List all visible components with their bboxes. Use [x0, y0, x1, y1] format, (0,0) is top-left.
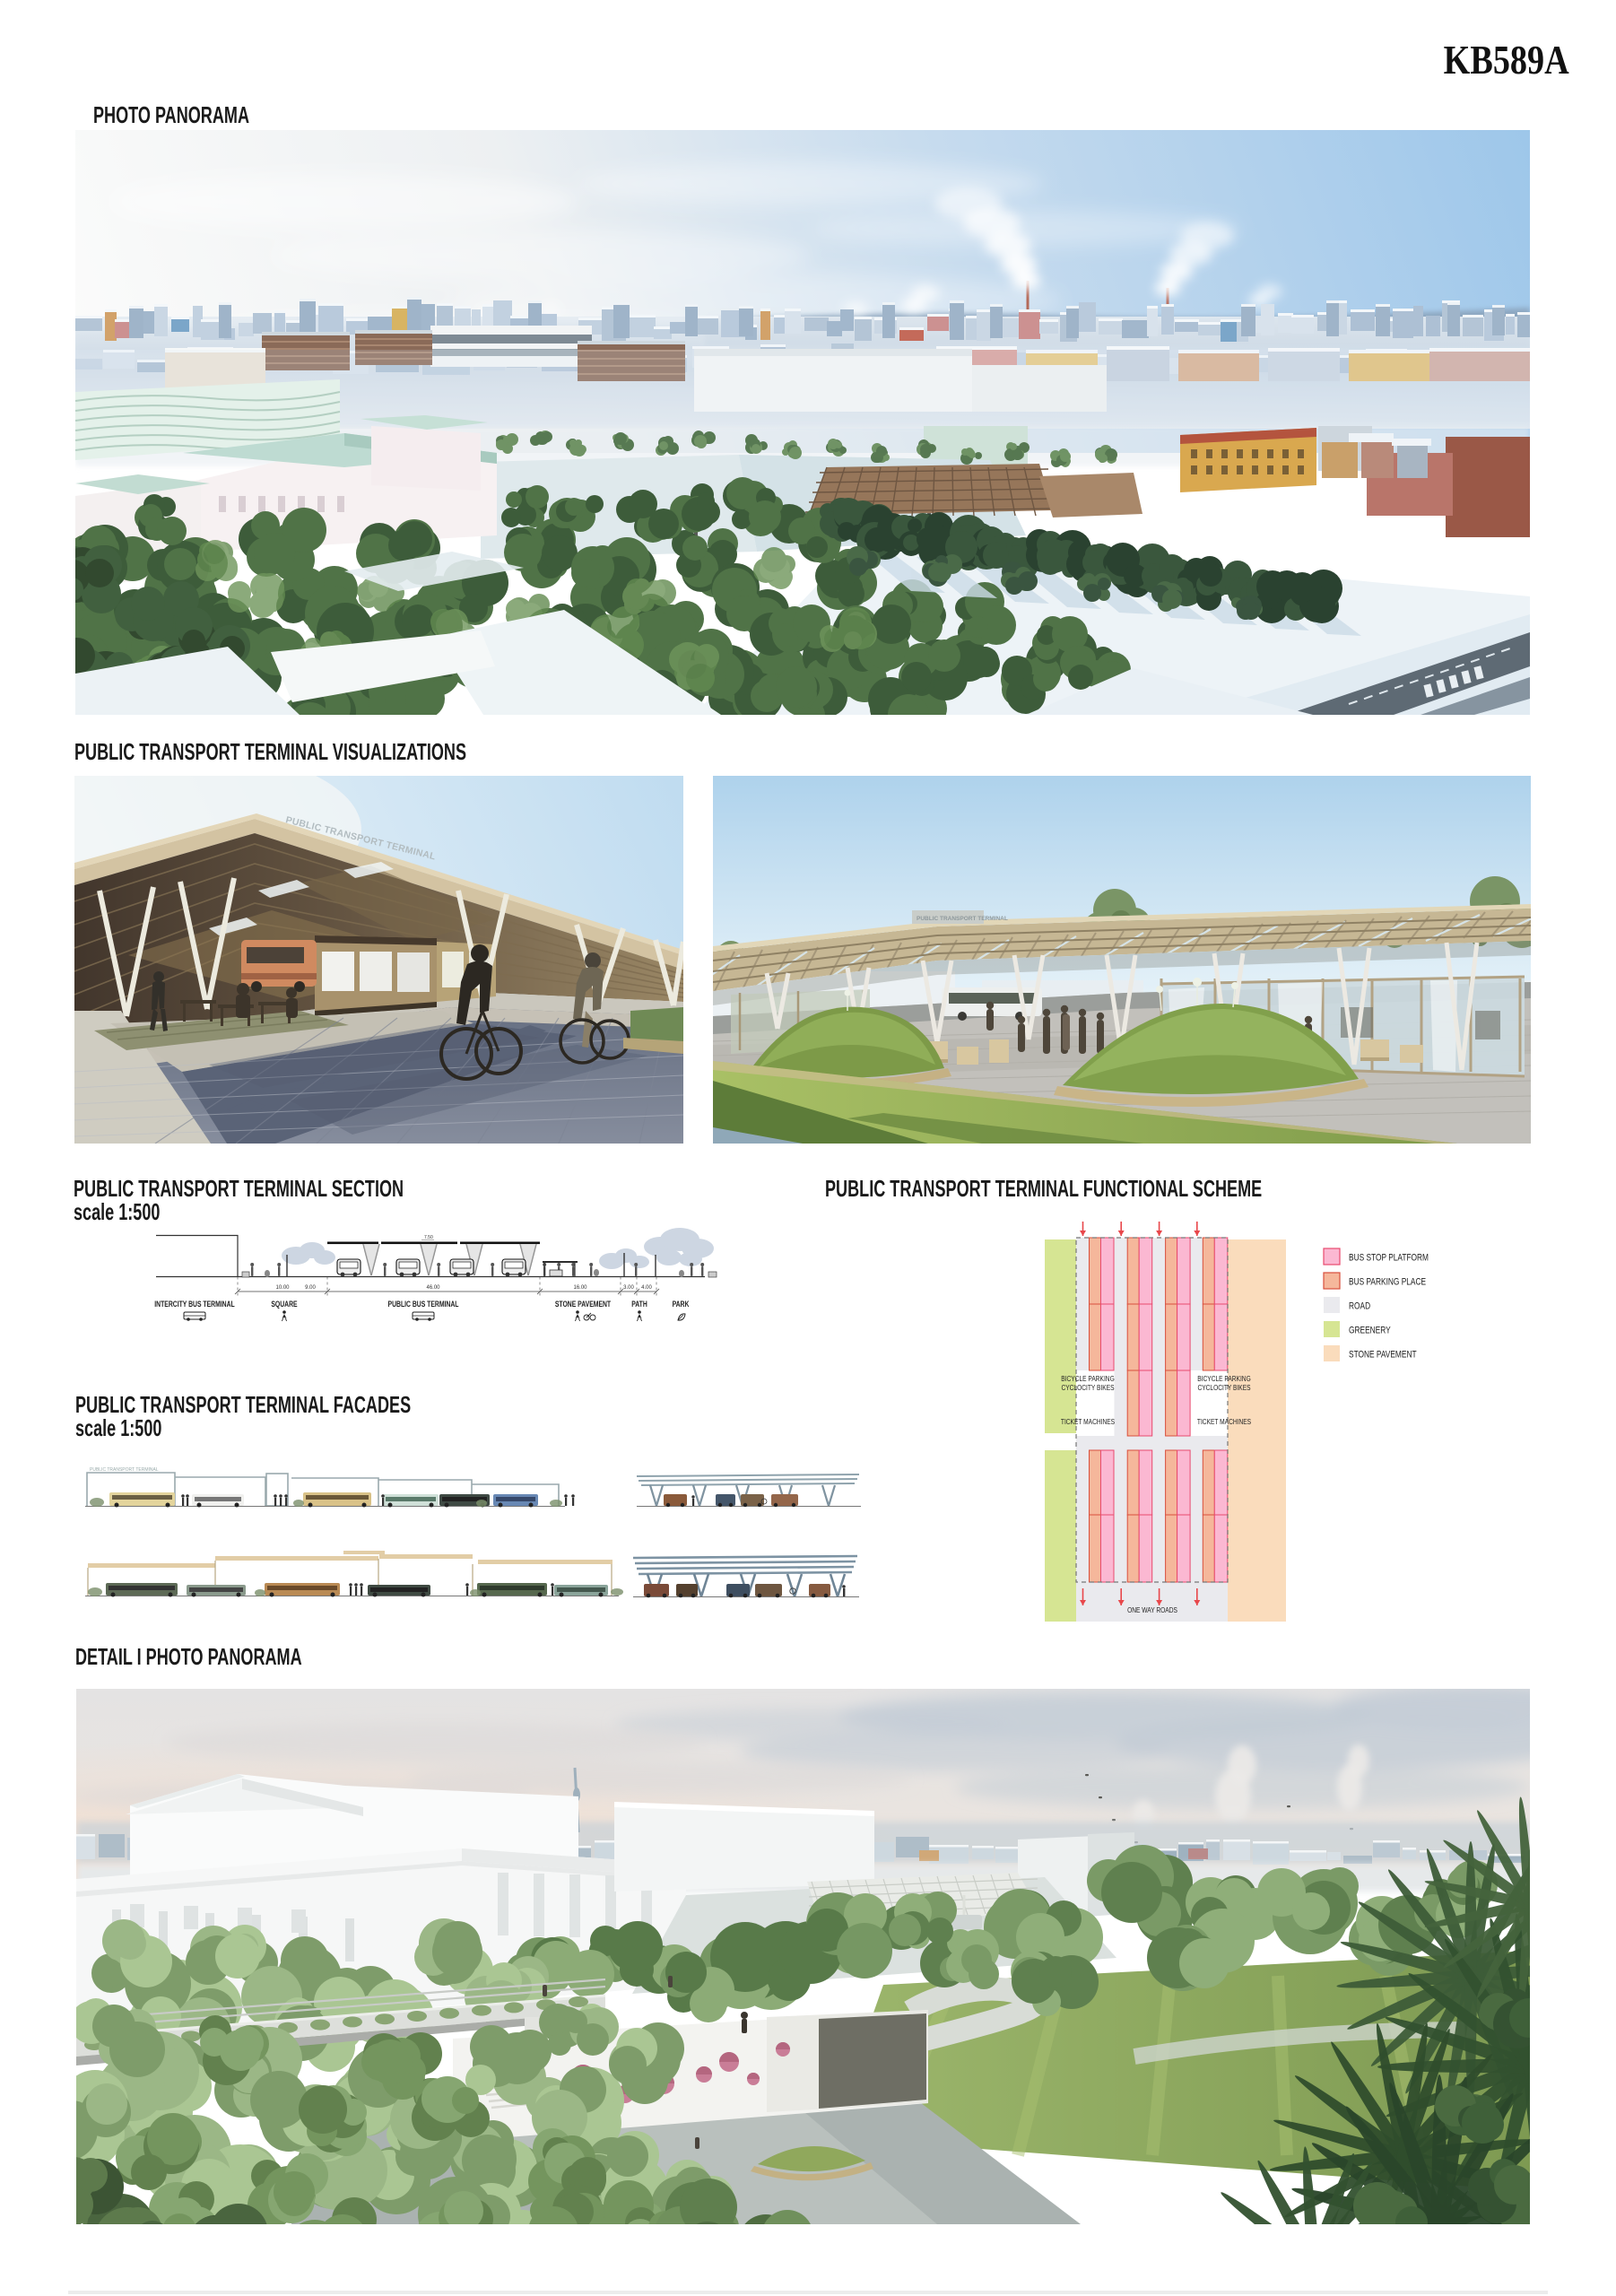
svg-text:STONE PAVEMENT: STONE PAVEMENT: [555, 1300, 611, 1309]
svg-text:BUS STOP PLATFORM: BUS STOP PLATFORM: [1349, 1252, 1429, 1263]
svg-text:16.00: 16.00: [573, 1285, 587, 1291]
svg-text:4.00: 4.00: [641, 1285, 652, 1291]
svg-text:7.50: 7.50: [424, 1235, 433, 1240]
svg-text:ONE WAY ROADS: ONE WAY ROADS: [1127, 1605, 1177, 1614]
svg-text:ROAD: ROAD: [1349, 1300, 1370, 1311]
svg-text:STONE PAVEMENT: STONE PAVEMENT: [1349, 1349, 1417, 1360]
svg-text:3.00: 3.00: [623, 1285, 634, 1291]
svg-text:PUBLIC TRANSPORT TERMINAL: PUBLIC TRANSPORT TERMINAL: [90, 1467, 159, 1473]
svg-text:SQUARE: SQUARE: [271, 1300, 298, 1309]
svg-text:TICKET MACHINES: TICKET MACHINES: [1061, 1417, 1115, 1426]
svg-text:GREENERY: GREENERY: [1349, 1325, 1391, 1335]
svg-text:10.00: 10.00: [275, 1285, 290, 1291]
svg-text:PUBLIC BUS TERMINAL: PUBLIC BUS TERMINAL: [388, 1300, 459, 1309]
svg-text:PATH: PATH: [631, 1300, 647, 1309]
svg-text:PARK: PARK: [673, 1300, 690, 1309]
svg-text:BICYCLE PARKING: BICYCLE PARKING: [1197, 1374, 1251, 1383]
svg-text:CYCLOCITY BIKES: CYCLOCITY BIKES: [1061, 1383, 1114, 1392]
svg-text:BICYCLE PARKING: BICYCLE PARKING: [1061, 1374, 1115, 1383]
svg-text:PUBLIC TRANSPORT TERMINAL: PUBLIC TRANSPORT TERMINAL: [917, 916, 1008, 922]
svg-text:CYCLOCITY BIKES: CYCLOCITY BIKES: [1197, 1383, 1250, 1392]
svg-text:BUS PARKING PLACE: BUS PARKING PLACE: [1349, 1276, 1427, 1287]
svg-text:INTERCITY BUS TERMINAL: INTERCITY BUS TERMINAL: [154, 1300, 234, 1309]
svg-text:TICKET MACHINES: TICKET MACHINES: [1197, 1417, 1251, 1426]
svg-text:9.00: 9.00: [305, 1285, 316, 1291]
svg-text:46.00: 46.00: [426, 1285, 440, 1291]
